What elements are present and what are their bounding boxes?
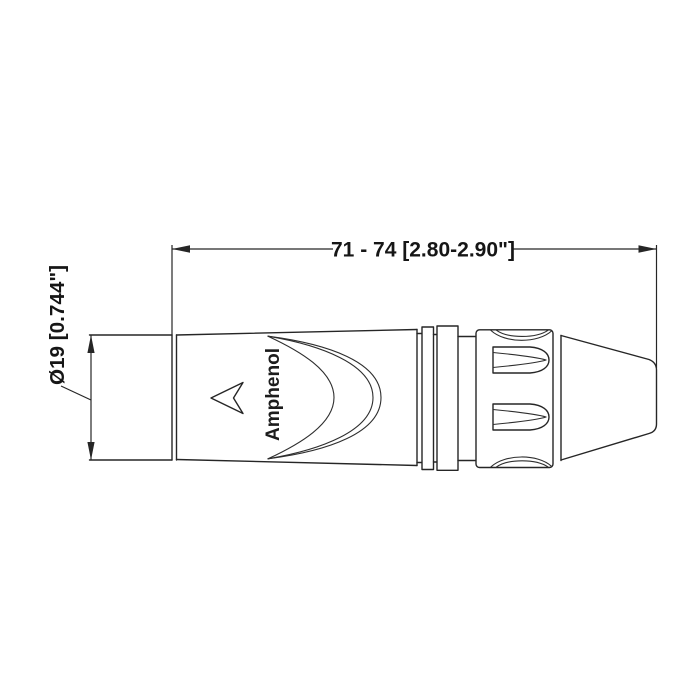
chuck-housing xyxy=(476,330,561,468)
dimension-arrow-down-icon xyxy=(87,442,94,460)
dimension-arrow-right-icon xyxy=(639,245,657,252)
dimension-arrow-left-icon xyxy=(172,245,190,252)
shell-bottom-edge xyxy=(177,460,418,466)
diameter-dimension-label: Ø19 [0.744"] xyxy=(47,265,69,385)
connector-technical-drawing: 71 - 74 [2.80-2.90"] Ø19 [0.744"] A xyxy=(0,0,700,700)
connector-main-shell: Amphenol xyxy=(177,330,418,466)
leader-line xyxy=(61,386,91,400)
length-dimension-label: 71 - 74 [2.80-2.90"] xyxy=(331,239,515,262)
xlr-front-barrel xyxy=(90,335,177,460)
chuck-slot-upper xyxy=(493,347,549,373)
shell-top-edge xyxy=(177,330,418,336)
drawing-canvas: 71 - 74 [2.80-2.90"] Ø19 [0.744"] A xyxy=(0,0,700,700)
dimension-arrow-up-icon xyxy=(87,335,94,353)
grip-ring-2 xyxy=(437,326,458,470)
amphenol-arrow-icon xyxy=(211,383,243,414)
length-dimension: 71 - 74 [2.80-2.90"] xyxy=(172,239,657,369)
boot-outline xyxy=(561,336,657,461)
shell-curve-outer xyxy=(268,336,381,459)
strain-relief-boot xyxy=(561,336,657,461)
grip-ring-1 xyxy=(422,327,434,470)
chuck-slot-lower xyxy=(493,404,549,430)
diameter-dimension: Ø19 [0.744"] xyxy=(47,265,95,460)
brand-label: Amphenol xyxy=(263,348,284,441)
grip-rings xyxy=(417,326,476,470)
